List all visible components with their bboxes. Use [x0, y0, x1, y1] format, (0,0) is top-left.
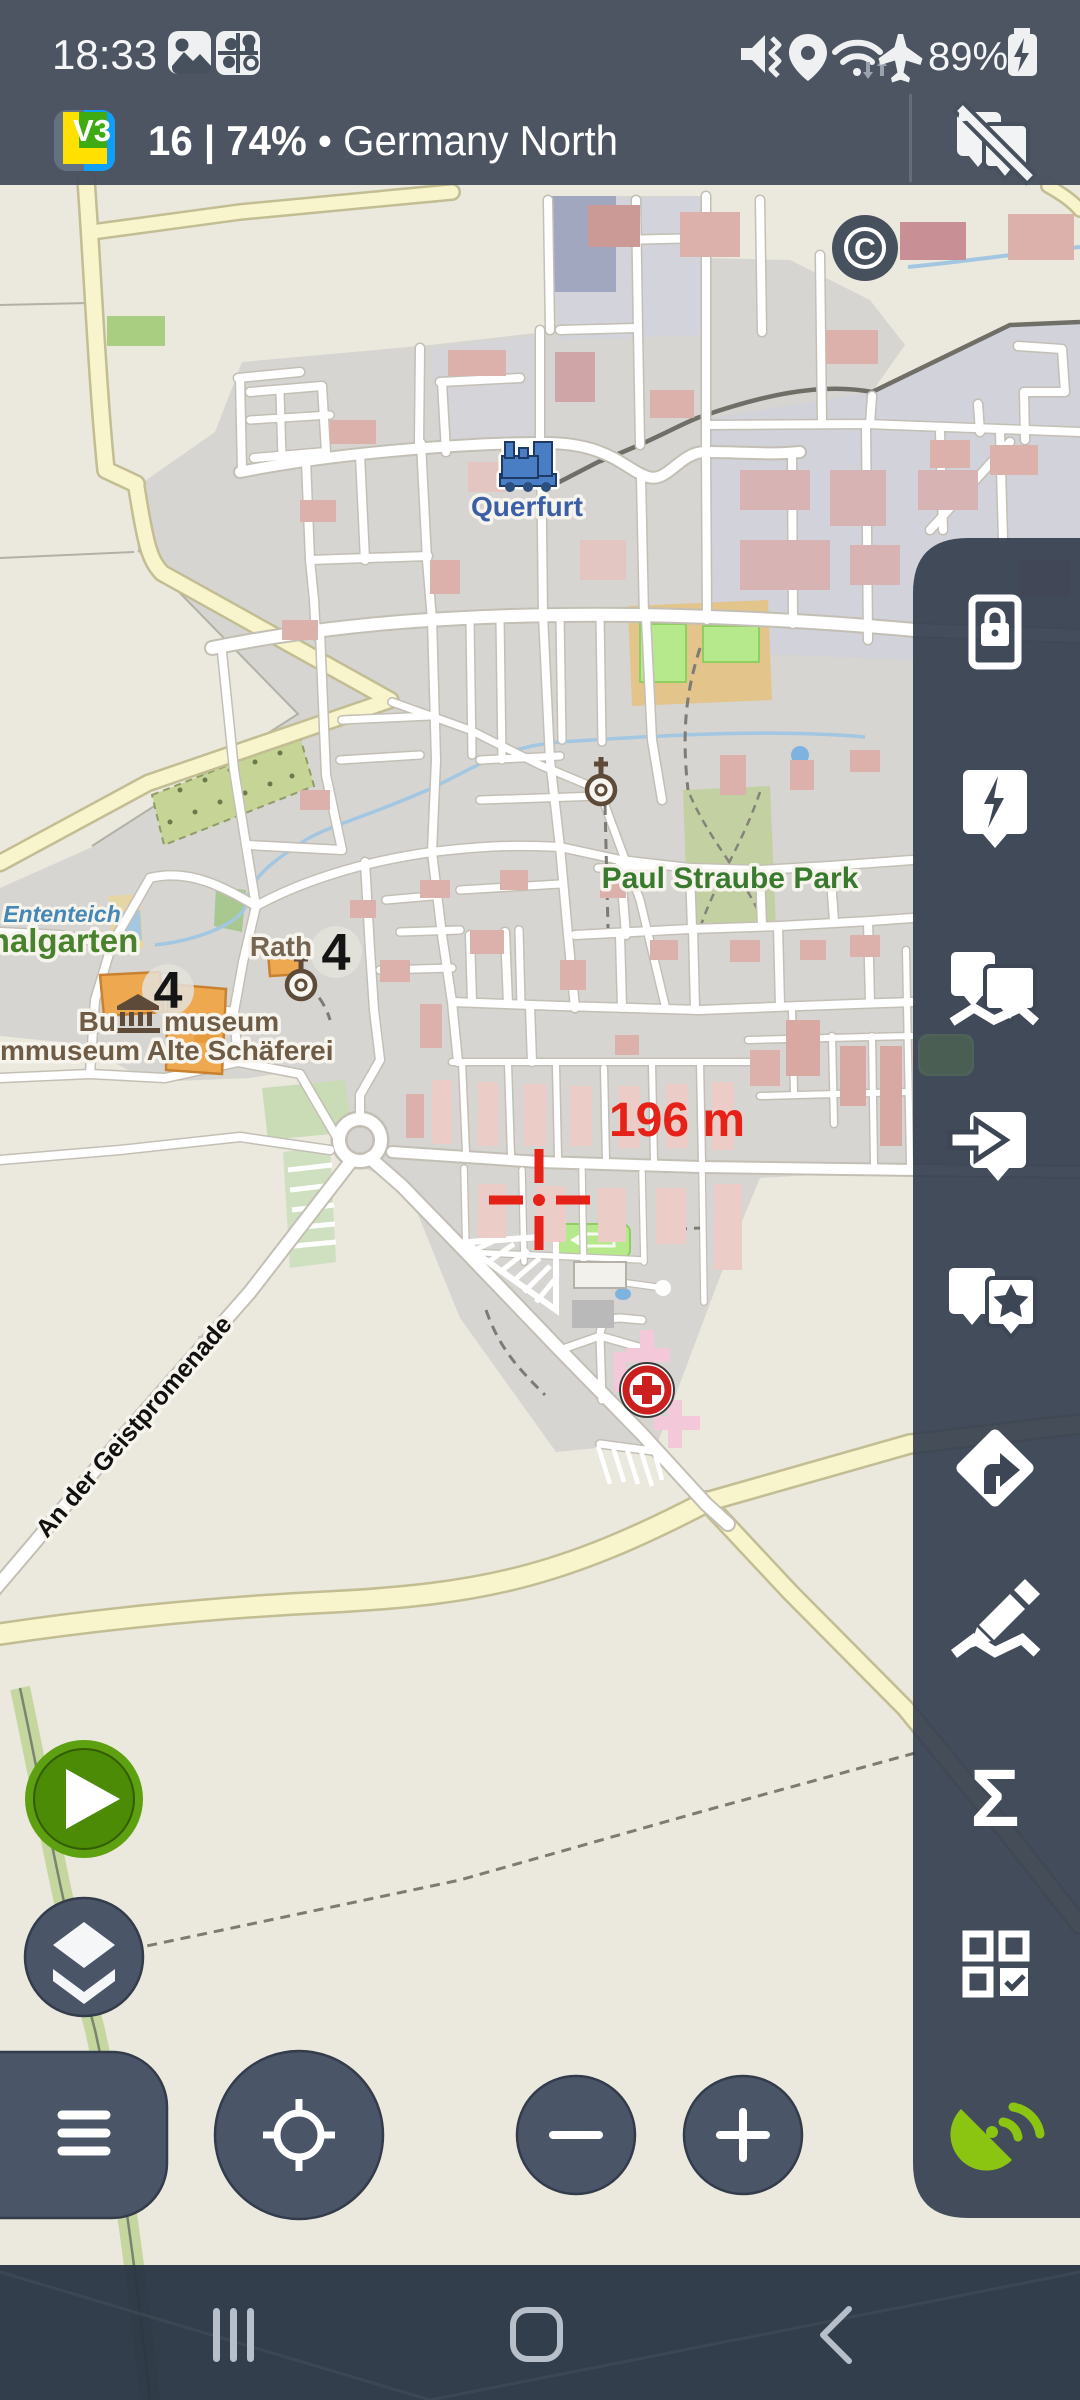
svg-text:196 m: 196 m: [609, 1094, 745, 1147]
svg-text:V3: V3: [73, 113, 111, 148]
svg-text:4: 4: [322, 924, 351, 982]
svg-text:mmuseum Alte Schäferei: mmuseum Alte Schäferei: [0, 1035, 334, 1066]
svg-text:Rath: Rath: [250, 931, 312, 962]
svg-text:16 | 74% • Germany North: 16 | 74% • Germany North: [148, 117, 618, 165]
svg-text:Σ: Σ: [970, 1753, 1019, 1844]
svg-text:museum: museum: [164, 1006, 279, 1037]
svg-text:Querfurt: Querfurt: [471, 491, 583, 522]
svg-text:Bu: Bu: [79, 1006, 116, 1037]
svg-text:18:33: 18:33: [52, 31, 157, 78]
svg-text:Paul Straube Park: Paul Straube Park: [602, 862, 859, 895]
svg-text:C: C: [854, 233, 876, 266]
svg-text:89%: 89%: [928, 35, 1008, 79]
svg-text:nalgarten: nalgarten: [0, 922, 138, 959]
